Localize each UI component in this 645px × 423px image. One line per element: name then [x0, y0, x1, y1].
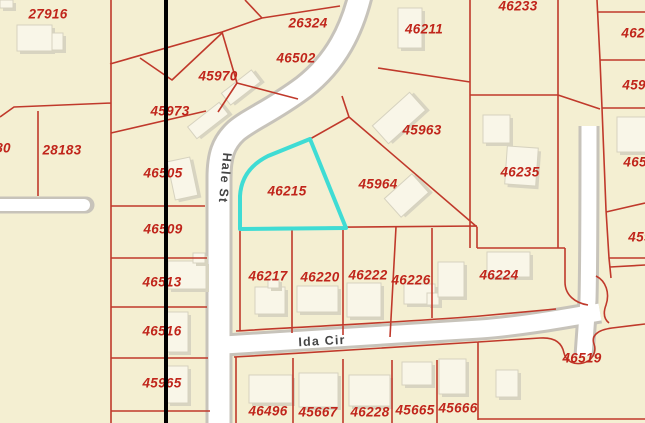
- building: [438, 262, 467, 300]
- building: [52, 33, 66, 53]
- building: [166, 312, 191, 355]
- building: [398, 8, 425, 51]
- building: [487, 252, 533, 280]
- building: [349, 375, 393, 409]
- building: [496, 370, 521, 400]
- building: [255, 287, 288, 317]
- building: [297, 286, 341, 315]
- building: [439, 359, 469, 397]
- parcel-map-svg[interactable]: [0, 0, 645, 423]
- building: [505, 146, 542, 189]
- district-boundary-line: [164, 0, 168, 423]
- building: [347, 283, 384, 320]
- building: [167, 366, 191, 406]
- building: [299, 373, 341, 410]
- building: [402, 362, 435, 388]
- right-road: [584, 126, 589, 356]
- building: [483, 115, 513, 146]
- building: [249, 375, 295, 406]
- building: [617, 117, 645, 155]
- building: [17, 25, 55, 54]
- map-canvas[interactable]: 2791626324465024597045973281838046505465…: [0, 0, 645, 423]
